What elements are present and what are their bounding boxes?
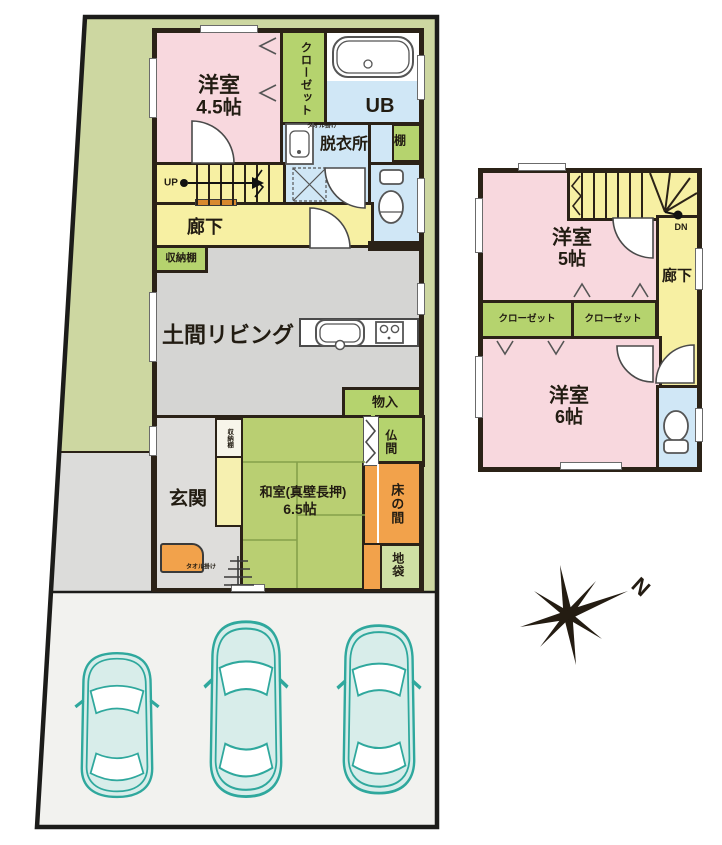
- shelf-label: 棚: [394, 134, 406, 147]
- room-toilet-2f: [656, 385, 700, 470]
- floor-cabinet-label: 地袋: [390, 552, 403, 578]
- entrance-label: 玄関: [169, 488, 207, 509]
- bedroom-5-size: 5帖: [558, 249, 586, 269]
- bedroom-4-5-size: 4.5帖: [196, 97, 241, 118]
- floor-plan-canvas: N 洋室 4.5帖 クローゼット UB 脱衣所 棚 タオル掛け UP 廊下 収納…: [0, 0, 722, 845]
- stairs-down-label: DN: [675, 222, 688, 232]
- room-dressing: [280, 122, 374, 208]
- altar-room-label: 仏間: [383, 429, 396, 455]
- entrance-closet-strip: [215, 456, 243, 527]
- bathtub-area: [327, 33, 419, 81]
- window: [149, 292, 157, 362]
- window: [560, 462, 622, 470]
- stairs-handrail: [195, 199, 237, 206]
- room-hallway-2f: [656, 215, 700, 391]
- hallway-2f-label: 廊下: [662, 269, 692, 286]
- approach-area: [52, 452, 153, 592]
- unit-bath-label: UB: [366, 95, 395, 117]
- hallway-1f-label: 廊下: [187, 217, 223, 237]
- stairs-up-label: UP: [164, 177, 178, 188]
- alcove-divider: [377, 464, 379, 546]
- storage-shelf-top-label: 収納棚: [165, 253, 197, 265]
- window: [200, 25, 258, 33]
- folding-door-strip: [363, 416, 379, 466]
- storage-monoire-label: 物入: [372, 396, 398, 411]
- window: [417, 283, 425, 315]
- storage-shelf-side-label: 収納棚: [225, 428, 232, 448]
- window: [695, 248, 703, 290]
- towel-rack-entrance-label: タオル掛け: [186, 565, 216, 572]
- bedroom-6-size: 6帖: [555, 407, 583, 427]
- window: [417, 178, 425, 233]
- entrance-door-opening: [231, 584, 265, 592]
- parking-area: [38, 592, 438, 827]
- wall-under-toilet: [368, 241, 422, 251]
- window: [695, 408, 703, 442]
- bedroom-4-5-label: 洋室: [198, 74, 240, 98]
- dressing-room-label: 脱衣所: [320, 136, 368, 154]
- closet-2f-right-label: クローゼット: [584, 315, 641, 326]
- window: [518, 163, 566, 171]
- living-label: 土間リビング: [162, 324, 294, 349]
- floor-cabinet-strip: [362, 543, 382, 591]
- window: [417, 55, 425, 100]
- alcove-label: 床の間: [389, 483, 404, 525]
- bedroom-6-label: 洋室: [549, 385, 589, 407]
- window: [149, 426, 157, 456]
- closet-2f-left-label: クローゼット: [498, 315, 555, 326]
- room-toilet-1f: [368, 162, 422, 245]
- window: [149, 58, 157, 118]
- japanese-room-size: 6.5帖: [283, 502, 316, 518]
- kitchen-counter: [299, 318, 419, 347]
- bedroom-5-label: 洋室: [552, 227, 592, 249]
- closet-1f-label: クローゼット: [299, 42, 312, 117]
- window: [475, 356, 483, 418]
- towel-rack-dressing-label: タオル掛け: [307, 124, 337, 131]
- window: [475, 198, 483, 253]
- japanese-room-label: 和室(真壁長押): [260, 486, 347, 501]
- stairs-2f: [567, 170, 700, 221]
